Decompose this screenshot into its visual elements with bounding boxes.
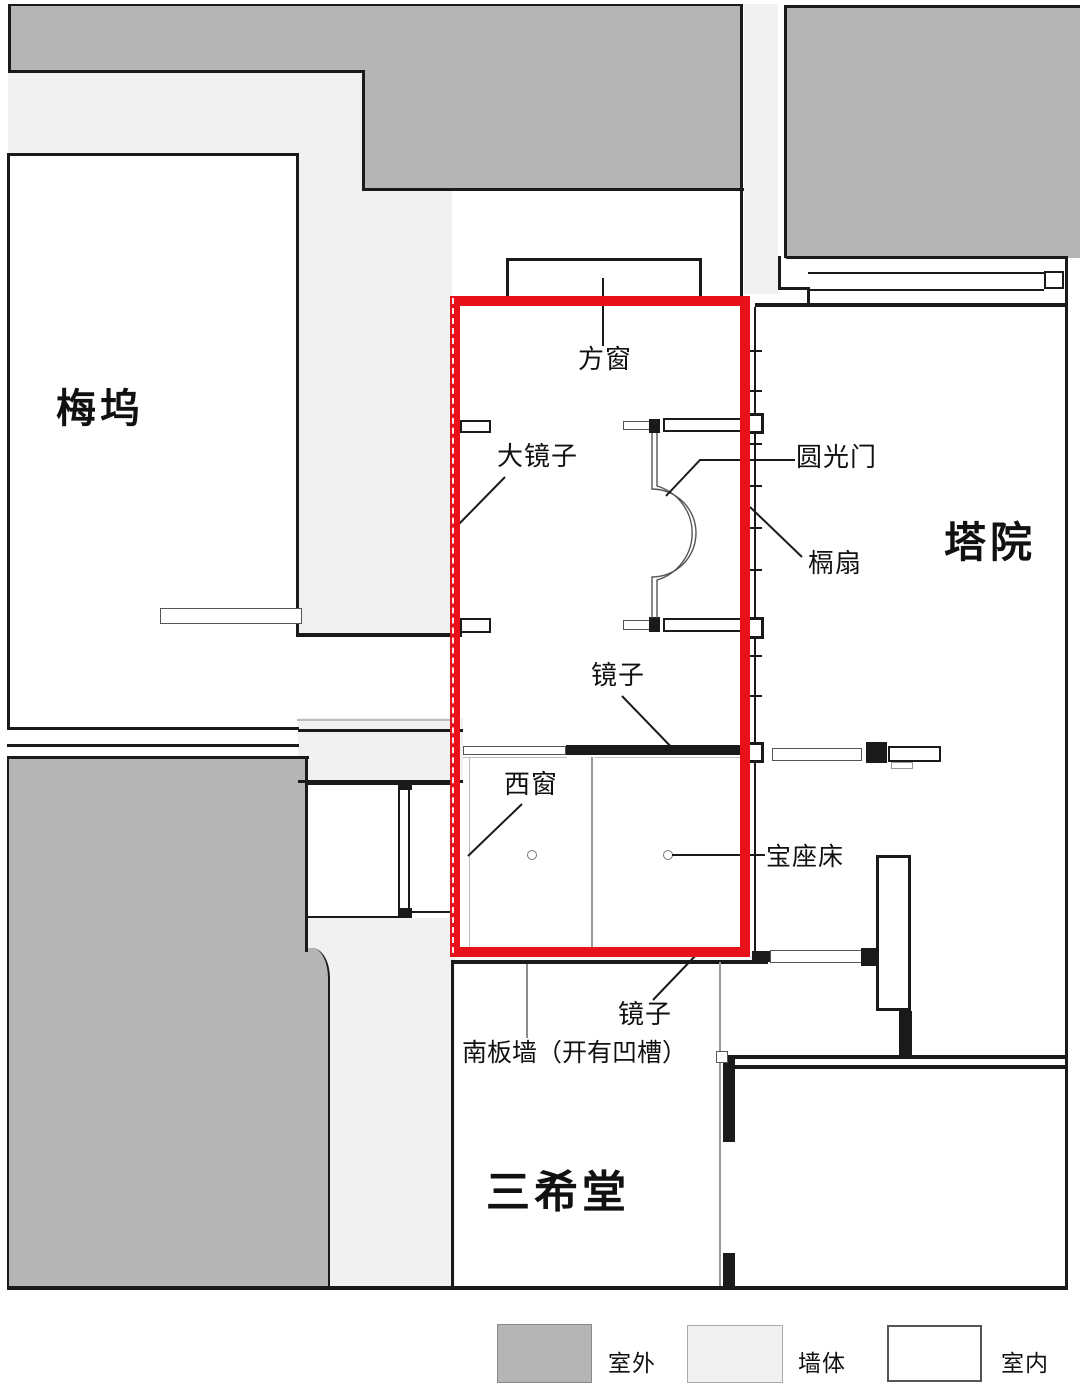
floor-plan: 梅坞 塔院 三希堂 方窗 大镜子 圆光门 槅扇 镜子 西窗 宝座床 镜子 南板墙… bbox=[0, 0, 1080, 1396]
label-xichuang: 西窗 bbox=[504, 771, 558, 798]
room-label-meiwu: 梅坞 bbox=[56, 388, 144, 430]
label-geshan: 槅扇 bbox=[808, 550, 862, 577]
label-dajingzi: 大镜子 bbox=[497, 443, 578, 470]
highlight-rectangle bbox=[450, 296, 750, 957]
label-fangchuang: 方窗 bbox=[578, 346, 632, 373]
legend-swatch-wall bbox=[687, 1325, 783, 1383]
leader-geshan bbox=[750, 507, 802, 557]
label-nanbanqiang: 南板墙（开有凹槽） bbox=[462, 1040, 687, 1066]
label-jingzi-north: 镜子 bbox=[591, 662, 645, 689]
room-label-tayuan: 塔院 bbox=[944, 521, 1036, 565]
label-jingzi-south: 镜子 bbox=[618, 1001, 672, 1028]
legend-label-outdoor: 室外 bbox=[608, 1344, 656, 1378]
label-yuanguangmen: 圆光门 bbox=[796, 444, 877, 471]
legend-swatch-indoor bbox=[887, 1325, 982, 1382]
label-baozuochuang: 宝座床 bbox=[766, 844, 844, 870]
highlight-dashed-inner bbox=[452, 298, 454, 953]
legend-label-indoor: 室内 bbox=[1001, 1344, 1049, 1378]
room-label-sanxitang: 三希堂 bbox=[486, 1170, 630, 1216]
legend-swatch-outdoor bbox=[497, 1324, 592, 1383]
leader-jingzi-south bbox=[653, 954, 697, 1000]
legend-label-wall: 墙体 bbox=[798, 1344, 846, 1378]
